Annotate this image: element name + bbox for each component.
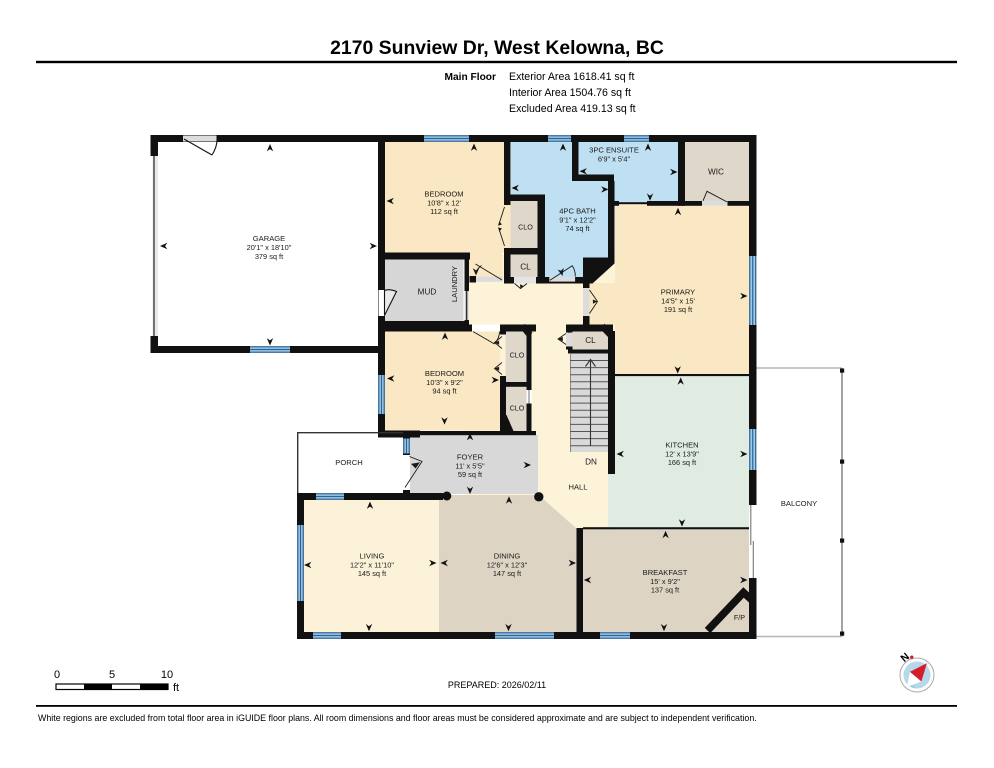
- svg-text:FOYER: FOYER: [457, 453, 484, 462]
- svg-text:BALCONY: BALCONY: [781, 499, 817, 508]
- svg-text:145 sq ft: 145 sq ft: [358, 569, 386, 578]
- svg-text:6'9" x 5'4": 6'9" x 5'4": [598, 154, 631, 163]
- svg-text:10: 10: [161, 669, 173, 681]
- svg-text:137 sq ft: 137 sq ft: [651, 586, 679, 595]
- svg-text:9'1" x 12'2": 9'1" x 12'2": [559, 215, 596, 224]
- svg-text:4PC BATH: 4PC BATH: [559, 207, 596, 216]
- svg-text:DINING: DINING: [494, 552, 521, 561]
- svg-text:166 sq ft: 166 sq ft: [668, 458, 696, 467]
- svg-text:12' x 13'9": 12' x 13'9": [665, 449, 699, 458]
- svg-text:3PC ENSUITE: 3PC ENSUITE: [589, 146, 639, 155]
- svg-text:12'6" x 12'3": 12'6" x 12'3": [487, 560, 528, 569]
- svg-text:0: 0: [54, 669, 60, 681]
- svg-text:CLO: CLO: [510, 351, 525, 360]
- svg-text:74 sq ft: 74 sq ft: [565, 224, 589, 233]
- svg-text:191 sq ft: 191 sq ft: [664, 305, 692, 314]
- svg-text:94 sq ft: 94 sq ft: [432, 387, 456, 396]
- svg-text:15' x 9'2": 15' x 9'2": [650, 577, 680, 586]
- svg-text:KITCHEN: KITCHEN: [665, 441, 698, 450]
- svg-text:Main Floor: Main Floor: [445, 72, 497, 83]
- svg-text:GARAGE: GARAGE: [253, 234, 286, 243]
- svg-text:Exterior Area 1618.41 sq ft: Exterior Area 1618.41 sq ft: [509, 71, 634, 83]
- svg-text:BREAKFAST: BREAKFAST: [643, 568, 688, 577]
- svg-text:BEDROOM: BEDROOM: [425, 369, 464, 378]
- svg-text:PRIMARY: PRIMARY: [661, 288, 695, 297]
- svg-text:CL: CL: [585, 336, 596, 345]
- svg-text:MUD: MUD: [418, 287, 437, 296]
- svg-text:20'1" x 18'10": 20'1" x 18'10": [247, 243, 292, 252]
- svg-text:10'3" x 9'2": 10'3" x 9'2": [426, 378, 463, 387]
- svg-text:10'8" x 12': 10'8" x 12': [427, 198, 461, 207]
- svg-text:LAUNDRY: LAUNDRY: [450, 266, 459, 302]
- svg-text:DN: DN: [585, 458, 597, 467]
- svg-text:CLO: CLO: [518, 223, 533, 232]
- svg-text:2170 Sunview Dr, West Kelowna,: 2170 Sunview Dr, West Kelowna, BC: [330, 37, 664, 59]
- svg-text:ft: ft: [173, 682, 179, 694]
- svg-text:379 sq ft: 379 sq ft: [255, 252, 283, 261]
- svg-text:HALL: HALL: [569, 483, 588, 492]
- svg-text:147 sq ft: 147 sq ft: [493, 569, 521, 578]
- svg-text:12'2" x 11'10": 12'2" x 11'10": [350, 560, 394, 569]
- svg-text:Excluded Area 419.13 sq ft: Excluded Area 419.13 sq ft: [509, 103, 636, 115]
- svg-text:CLO: CLO: [510, 404, 525, 413]
- svg-text:5: 5: [109, 669, 115, 681]
- svg-text:PORCH: PORCH: [335, 458, 362, 467]
- svg-text:WIC: WIC: [708, 168, 724, 177]
- svg-text:PREPARED: 2026/02/11: PREPARED: 2026/02/11: [448, 680, 546, 690]
- svg-text:BEDROOM: BEDROOM: [424, 190, 463, 199]
- svg-text:14'5" x 15': 14'5" x 15': [661, 296, 695, 305]
- svg-text:11' x 5'5": 11' x 5'5": [455, 461, 485, 470]
- svg-text:112 sq ft: 112 sq ft: [430, 207, 458, 216]
- svg-text:Interior Area 1504.76 sq ft: Interior Area 1504.76 sq ft: [509, 87, 631, 99]
- svg-text:F/P: F/P: [734, 613, 745, 622]
- svg-text:White regions are excluded fro: White regions are excluded from total fl…: [38, 713, 757, 723]
- svg-text:LIVING: LIVING: [360, 552, 385, 561]
- svg-text:CL: CL: [520, 263, 531, 272]
- svg-text:59 sq ft: 59 sq ft: [458, 470, 482, 479]
